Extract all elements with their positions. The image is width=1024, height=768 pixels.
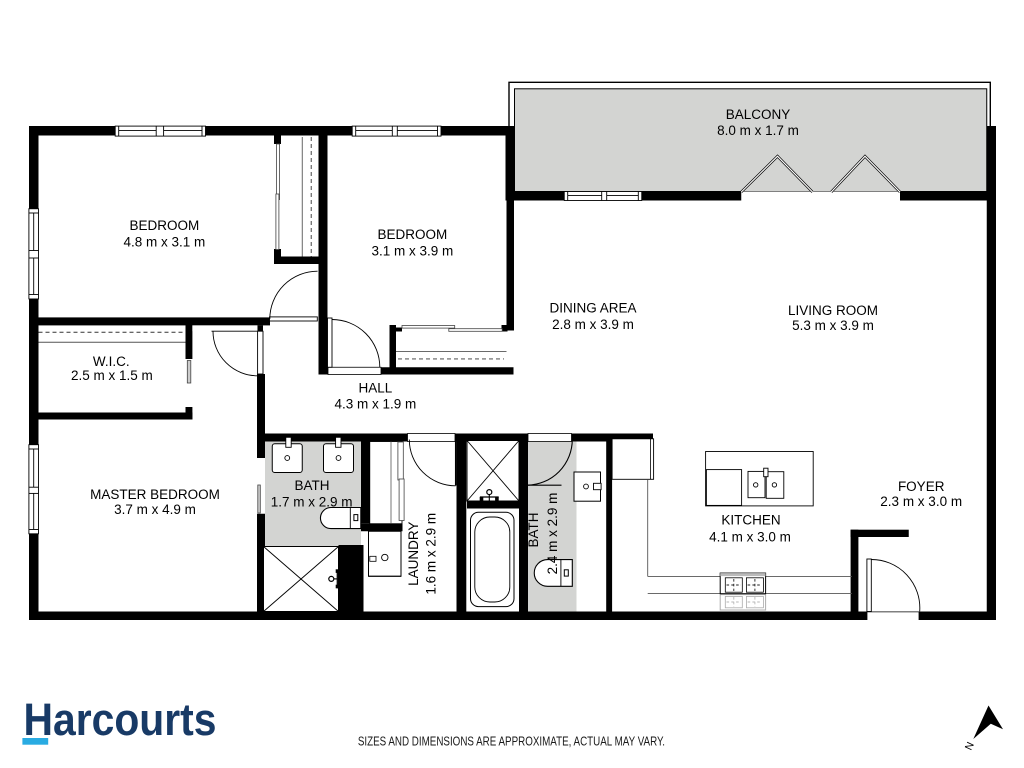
svg-text:3.7 m x 4.9 m: 3.7 m x 4.9 m [114,502,196,517]
svg-text:BALCONY: BALCONY [726,107,791,122]
svg-text:2.5 m x 1.5 m: 2.5 m x 1.5 m [71,368,153,383]
svg-text:LIVING ROOM: LIVING ROOM [788,303,878,318]
svg-text:1.7 m x 2.9 m: 1.7 m x 2.9 m [271,494,353,509]
svg-text:DINING AREA: DINING AREA [549,300,636,315]
svg-text:FOYER: FOYER [898,479,945,494]
svg-text:2.8 m x 3.9 m: 2.8 m x 3.9 m [552,317,634,332]
svg-text:BATH: BATH [526,512,541,547]
svg-text:KITCHEN: KITCHEN [721,513,780,528]
svg-text:4.8 m x 3.1 m: 4.8 m x 3.1 m [124,234,206,249]
svg-text:HALL: HALL [359,380,393,395]
svg-text:2.3 m x 3.0 m: 2.3 m x 3.0 m [880,494,962,509]
svg-text:LAUNDRY: LAUNDRY [406,522,421,586]
svg-text:4.3 m x 1.9 m: 4.3 m x 1.9 m [335,397,417,412]
svg-text:4.1 m x 3.0 m: 4.1 m x 3.0 m [709,530,791,545]
svg-text:8.0 m x 1.7 m: 8.0 m x 1.7 m [717,123,799,138]
svg-text:1.6 m x 2.9 m: 1.6 m x 2.9 m [423,513,438,595]
svg-text:BEDROOM: BEDROOM [378,227,448,242]
svg-text:BATH: BATH [294,478,329,493]
svg-text:Harcourts: Harcourts [24,695,217,745]
svg-text:SIZES AND DIMENSIONS ARE APPRO: SIZES AND DIMENSIONS ARE APPROXIMATE, AC… [358,735,665,748]
svg-text:5.3 m x 3.9 m: 5.3 m x 3.9 m [792,318,874,333]
svg-text:BEDROOM: BEDROOM [130,218,200,233]
svg-text:3.1 m x 3.9 m: 3.1 m x 3.9 m [372,243,454,258]
svg-text:MASTER BEDROOM: MASTER BEDROOM [90,487,220,502]
svg-text:2.4 m x 2.9 m: 2.4 m x 2.9 m [545,493,560,575]
svg-text:W.I.C.: W.I.C. [93,354,130,369]
